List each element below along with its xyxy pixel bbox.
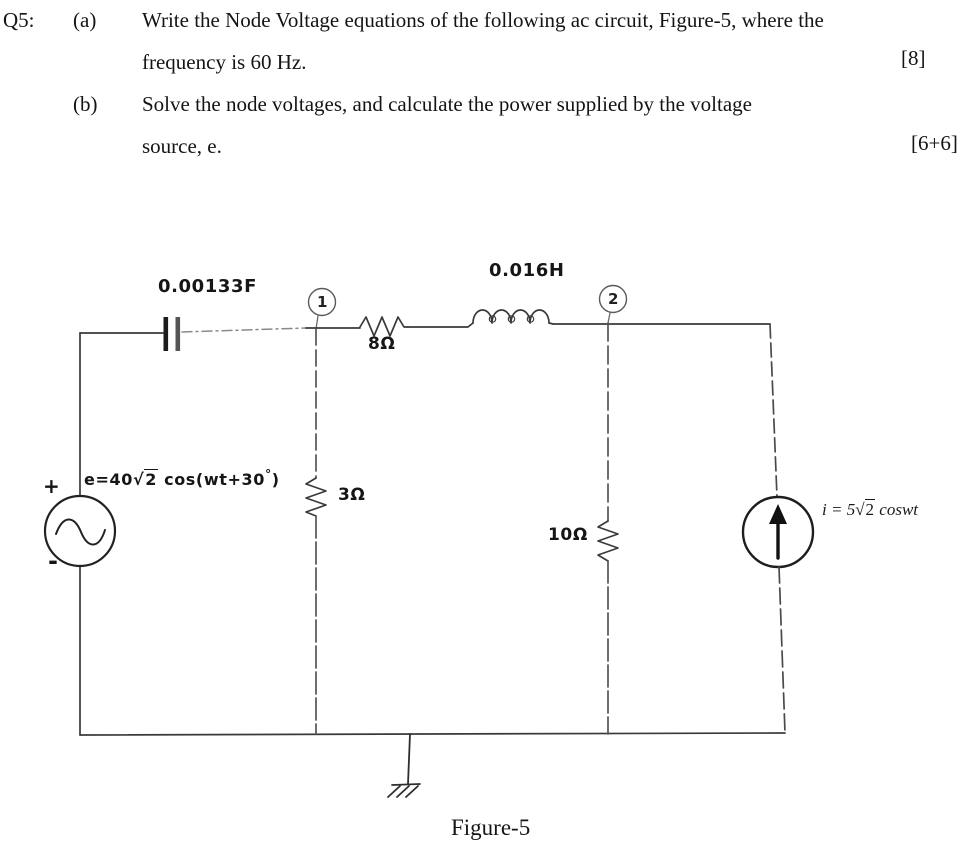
wire-isource-to-bottom [779,567,785,733]
wire-bottom [80,733,785,735]
resistor-3-symbol [306,478,326,516]
current-source-label: i = 5√2 coswt [822,500,918,520]
voltage-label-pre: e=40 [84,470,133,489]
circuit-diagram [0,0,974,850]
branch-node1 [306,329,326,734]
resistor-3-label: 3Ω [338,486,365,506]
inductor-symbol [473,310,553,324]
node2-tick [608,313,610,323]
part-b-marks: [6+6] [911,131,958,155]
current-label-post: coswt [875,500,918,519]
voltage-label-end: ) [272,470,280,489]
voltage-label-mid: cos(wt+30 [158,470,265,489]
voltage-source-minus: - [48,548,59,576]
resistor-10-symbol [598,521,618,561]
node1-tick [316,316,318,329]
branch-node2 [598,323,618,734]
part-a-label: (a) [73,8,96,32]
question-number: Q5: [3,8,35,32]
wire-cap-to-node1 [182,328,306,332]
part-a-marks: [8] [901,46,926,70]
current-arrow-head [769,504,787,524]
part-a-line1: Write the Node Voltage equations of the … [142,8,824,32]
sqrt-sign: √ [133,470,144,489]
current-label-radicand: 2 [865,499,876,519]
sqrt-sign: √ [855,500,864,519]
capacitor-value-label: 0.00133F [158,277,257,298]
current-source-symbol [743,497,813,567]
part-a-line2: frequency is 60 Hz. [142,50,306,74]
current-label-pre: i = 5 [822,500,855,519]
part-b-line1: Solve the node voltages, and calculate t… [142,92,752,116]
voltage-label-degree: ° [265,467,272,482]
wire-corner-to-isource [770,324,777,497]
node2-label: 2 [608,291,618,308]
node1-label: 1 [317,294,327,311]
wire-r8-to-inductor [408,323,473,327]
inductor-value-label: 0.016H [489,261,565,282]
voltage-source-label: e=40√2 cos(wt+30°) [84,471,280,489]
resistor-10-label: 10Ω [548,526,588,546]
part-b-line2: source, e. [142,134,222,158]
voltage-label-radicand: 2 [144,469,158,489]
ground-symbol [388,734,420,797]
part-b-label: (b) [73,92,98,116]
resistor-8-label: 8Ω [368,335,395,355]
figure-caption: Figure-5 [451,815,530,841]
voltage-source-plus: + [43,475,60,498]
exam-page: Q5: (a) Write the Node Voltage equations… [0,0,974,850]
capacitor-symbol [164,317,181,351]
